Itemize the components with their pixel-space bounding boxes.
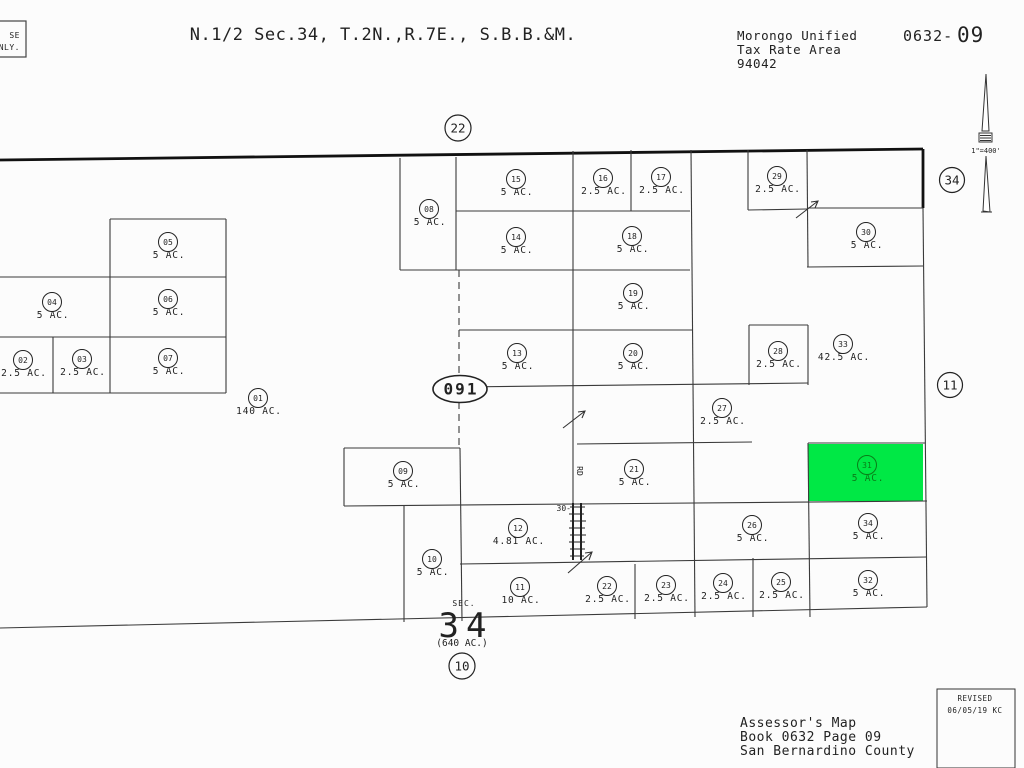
parcel-acreage: 2.5 AC. bbox=[585, 594, 631, 605]
parcel-acreage: 5 AC. bbox=[618, 301, 651, 312]
svg-text:Assessor's Map: Assessor's Map bbox=[740, 716, 857, 731]
parcel-number: 14 bbox=[511, 233, 521, 242]
parcel-24[interactable]: 242.5 AC. bbox=[701, 574, 747, 603]
svg-text:San Bernardino County: San Bernardino County bbox=[740, 744, 915, 759]
parcel-acreage: 2.5 AC. bbox=[60, 367, 106, 378]
parcel-number: 05 bbox=[163, 238, 173, 247]
road-easement bbox=[569, 503, 586, 560]
parcel-number: 28 bbox=[773, 347, 783, 356]
parcel-16[interactable]: 162.5 AC. bbox=[581, 169, 627, 198]
parcel-number: 23 bbox=[661, 581, 671, 590]
parcel-acreage: 2.5 AC. bbox=[756, 359, 802, 370]
parcel-acreage: 5 AC. bbox=[501, 187, 534, 198]
svg-text:34: 34 bbox=[944, 173, 959, 188]
parcel-number: 30 bbox=[861, 228, 871, 237]
tax-rate-area: Morongo Unified Tax Rate Area 94042 bbox=[737, 28, 857, 71]
svg-text:09: 09 bbox=[957, 23, 984, 47]
parcel-acreage: 5 AC. bbox=[502, 361, 535, 372]
parcel-22[interactable]: 222.5 AC. bbox=[585, 577, 631, 606]
survey-arrows bbox=[563, 201, 818, 573]
parcel-number: 03 bbox=[77, 355, 87, 364]
page-ref-right-upper[interactable]: 34 bbox=[940, 168, 965, 193]
svg-text:091: 091 bbox=[444, 380, 479, 399]
parcel-25[interactable]: 252.5 AC. bbox=[759, 573, 805, 602]
parcel-10[interactable]: 105 AC. bbox=[417, 550, 450, 579]
parcel-acreage: 140 AC. bbox=[236, 406, 282, 417]
parcel-acreage: 5 AC. bbox=[618, 361, 651, 372]
parcel-08[interactable]: 085 AC. bbox=[414, 200, 447, 229]
parcel-number: 26 bbox=[747, 521, 757, 530]
parcel-09[interactable]: 095 AC. bbox=[388, 462, 421, 491]
parcel-acreage: 2.5 AC. bbox=[644, 593, 690, 604]
parcel-acreage: 2.5 AC. bbox=[1, 368, 47, 379]
parcel-number: 24 bbox=[718, 579, 728, 588]
parcel-number: 06 bbox=[163, 295, 173, 304]
parcel-acreage: 5 AC. bbox=[388, 479, 421, 490]
svg-text:94042: 94042 bbox=[737, 56, 777, 71]
parcel-acreage: 5 AC. bbox=[853, 531, 886, 542]
parcel-number: 20 bbox=[628, 349, 638, 358]
road-width-label: 30- bbox=[557, 504, 571, 513]
svg-text:REVISED: REVISED bbox=[957, 694, 992, 703]
svg-text:22: 22 bbox=[450, 121, 465, 136]
parcel-acreage: 5 AC. bbox=[852, 473, 885, 484]
parcel-number: 02 bbox=[18, 356, 28, 365]
parcel-30[interactable]: 305 AC. bbox=[851, 223, 884, 252]
parcel-acreage: 5 AC. bbox=[153, 307, 186, 318]
svg-text:SE: SE bbox=[9, 31, 20, 40]
parcel-11[interactable]: 1110 AC. bbox=[501, 578, 540, 607]
parcel-number: 12 bbox=[513, 524, 523, 533]
parcel-number: 16 bbox=[598, 174, 608, 183]
parcel-02[interactable]: 022.5 AC. bbox=[1, 351, 47, 380]
parcel-05[interactable]: 055 AC. bbox=[153, 233, 186, 262]
svg-text:06/05/19 KC: 06/05/19 KC bbox=[947, 706, 1002, 715]
road-name-label: RD bbox=[575, 466, 584, 476]
parcel-number: 08 bbox=[424, 205, 434, 214]
north-arrow: 1"=400' bbox=[971, 74, 1001, 212]
parcel-acreage: 5 AC. bbox=[153, 250, 186, 261]
parcel-number: 10 bbox=[427, 555, 437, 564]
parcel-18[interactable]: 185 AC. bbox=[617, 227, 650, 256]
section-boundary-lines bbox=[0, 149, 923, 208]
parcel-14[interactable]: 145 AC. bbox=[501, 228, 534, 257]
parcel-06[interactable]: 065 AC. bbox=[153, 290, 186, 319]
parcel-number: 32 bbox=[863, 576, 873, 585]
parcel-number: 33 bbox=[838, 340, 848, 349]
book-marker: 091 bbox=[433, 376, 487, 403]
page-ref-right-lower[interactable]: 11 bbox=[938, 373, 963, 398]
parcel-34[interactable]: 345 AC. bbox=[853, 514, 886, 543]
footer-caption: Assessor's Map Book 0632 Page 09 San Ber… bbox=[740, 716, 915, 759]
svg-text:Morongo Unified: Morongo Unified bbox=[737, 28, 857, 43]
svg-text:Book 0632 Page 09: Book 0632 Page 09 bbox=[740, 730, 882, 745]
parcel-acreage: 5 AC. bbox=[417, 567, 450, 578]
usage-stamp: SE NLY. bbox=[0, 21, 26, 57]
svg-text:(640 AC.): (640 AC.) bbox=[436, 638, 487, 649]
parcel-acreage: 5 AC. bbox=[414, 217, 447, 228]
parcel-number: 13 bbox=[512, 349, 522, 358]
revision-box: REVISED 06/05/19 KC bbox=[937, 689, 1015, 768]
assessor-map-page: 30- RD 1"=400' 22 34 11 10 091 bbox=[0, 0, 1024, 768]
parcel-acreage: 5 AC. bbox=[37, 310, 70, 321]
parcel-number: 34 bbox=[863, 519, 873, 528]
svg-text:11: 11 bbox=[942, 378, 957, 393]
parcel-04[interactable]: 045 AC. bbox=[37, 293, 70, 322]
parcel-33[interactable]: 3342.5 AC. bbox=[818, 335, 870, 364]
parcel-number: 11 bbox=[515, 583, 525, 592]
parcel-21[interactable]: 215 AC. bbox=[619, 460, 652, 489]
parcel-number: 17 bbox=[656, 173, 666, 182]
parcel-number: 18 bbox=[627, 232, 637, 241]
parcel-number: 09 bbox=[398, 467, 408, 476]
parcel-03[interactable]: 032.5 AC. bbox=[60, 350, 106, 379]
parcel-01[interactable]: 01140 AC. bbox=[236, 389, 282, 418]
svg-text:10: 10 bbox=[454, 659, 469, 674]
parcel-number: 29 bbox=[772, 172, 782, 181]
section-label: SEC. 34 (640 AC.) bbox=[436, 599, 493, 649]
parcel-29[interactable]: 292.5 AC. bbox=[755, 167, 801, 196]
parcel-acreage: 10 AC. bbox=[501, 595, 540, 606]
parcel-12[interactable]: 124.81 AC. bbox=[493, 519, 545, 548]
parcel-number: 31 bbox=[862, 461, 872, 470]
svg-text:0632-: 0632- bbox=[903, 27, 953, 45]
parcel-acreage: 2.5 AC. bbox=[759, 590, 805, 601]
parcel-acreage: 5 AC. bbox=[501, 245, 534, 256]
parcel-number: 19 bbox=[628, 289, 638, 298]
parcel-acreage: 2.5 AC. bbox=[755, 184, 801, 195]
parcel-number: 15 bbox=[511, 175, 521, 184]
svg-text:Tax Rate Area: Tax Rate Area bbox=[737, 42, 841, 57]
parcel-28[interactable]: 282.5 AC. bbox=[756, 342, 802, 371]
parcel-27[interactable]: 272.5 AC. bbox=[700, 399, 746, 428]
parcel-acreage: 5 AC. bbox=[617, 244, 650, 255]
parcel-acreage: 5 AC. bbox=[853, 588, 886, 599]
parcel-number: 22 bbox=[602, 582, 612, 591]
parcel-acreage: 2.5 AC. bbox=[701, 591, 747, 602]
parcel-23[interactable]: 232.5 AC. bbox=[644, 576, 690, 605]
parcel-acreage: 5 AC. bbox=[737, 533, 770, 544]
svg-text:NLY.: NLY. bbox=[0, 43, 20, 52]
book-page-code: 0632- 09 bbox=[903, 23, 984, 47]
parcel-acreage: 5 AC. bbox=[851, 240, 884, 251]
scale-label: 1"=400' bbox=[971, 147, 1001, 155]
map-title: N.1/2 Sec.34, T.2N.,R.7E., S.B.B.&M. bbox=[190, 25, 576, 45]
parcel-number: 04 bbox=[47, 298, 57, 307]
parcel-number: 07 bbox=[163, 354, 173, 363]
parcel-15[interactable]: 155 AC. bbox=[501, 170, 534, 199]
parcel-acreage: 5 AC. bbox=[153, 366, 186, 377]
parcel-acreage: 5 AC. bbox=[619, 477, 652, 488]
parcel-acreage: 2.5 AC. bbox=[700, 416, 746, 427]
parcel-20[interactable]: 205 AC. bbox=[618, 344, 651, 373]
parcel-number: 25 bbox=[776, 578, 786, 587]
parcel-number: 21 bbox=[629, 465, 639, 474]
parcel-acreage: 42.5 AC. bbox=[818, 352, 870, 363]
parcel-17[interactable]: 172.5 AC. bbox=[639, 168, 685, 197]
parcel-19[interactable]: 195 AC. bbox=[618, 284, 651, 313]
parcel-32[interactable]: 325 AC. bbox=[853, 571, 886, 600]
parcel-number: 27 bbox=[717, 404, 727, 413]
parcel-13[interactable]: 135 AC. bbox=[502, 344, 535, 373]
page-ref-top[interactable]: 22 bbox=[445, 115, 471, 141]
parcel-number: 01 bbox=[253, 394, 263, 403]
parcel-26[interactable]: 265 AC. bbox=[737, 516, 770, 545]
parcel-acreage: 2.5 AC. bbox=[581, 186, 627, 197]
parcel-07[interactable]: 075 AC. bbox=[153, 349, 186, 378]
page-ref-bottom[interactable]: 10 bbox=[449, 653, 475, 679]
parcel-acreage: 4.81 AC. bbox=[493, 536, 545, 547]
parcel-acreage: 2.5 AC. bbox=[639, 185, 685, 196]
